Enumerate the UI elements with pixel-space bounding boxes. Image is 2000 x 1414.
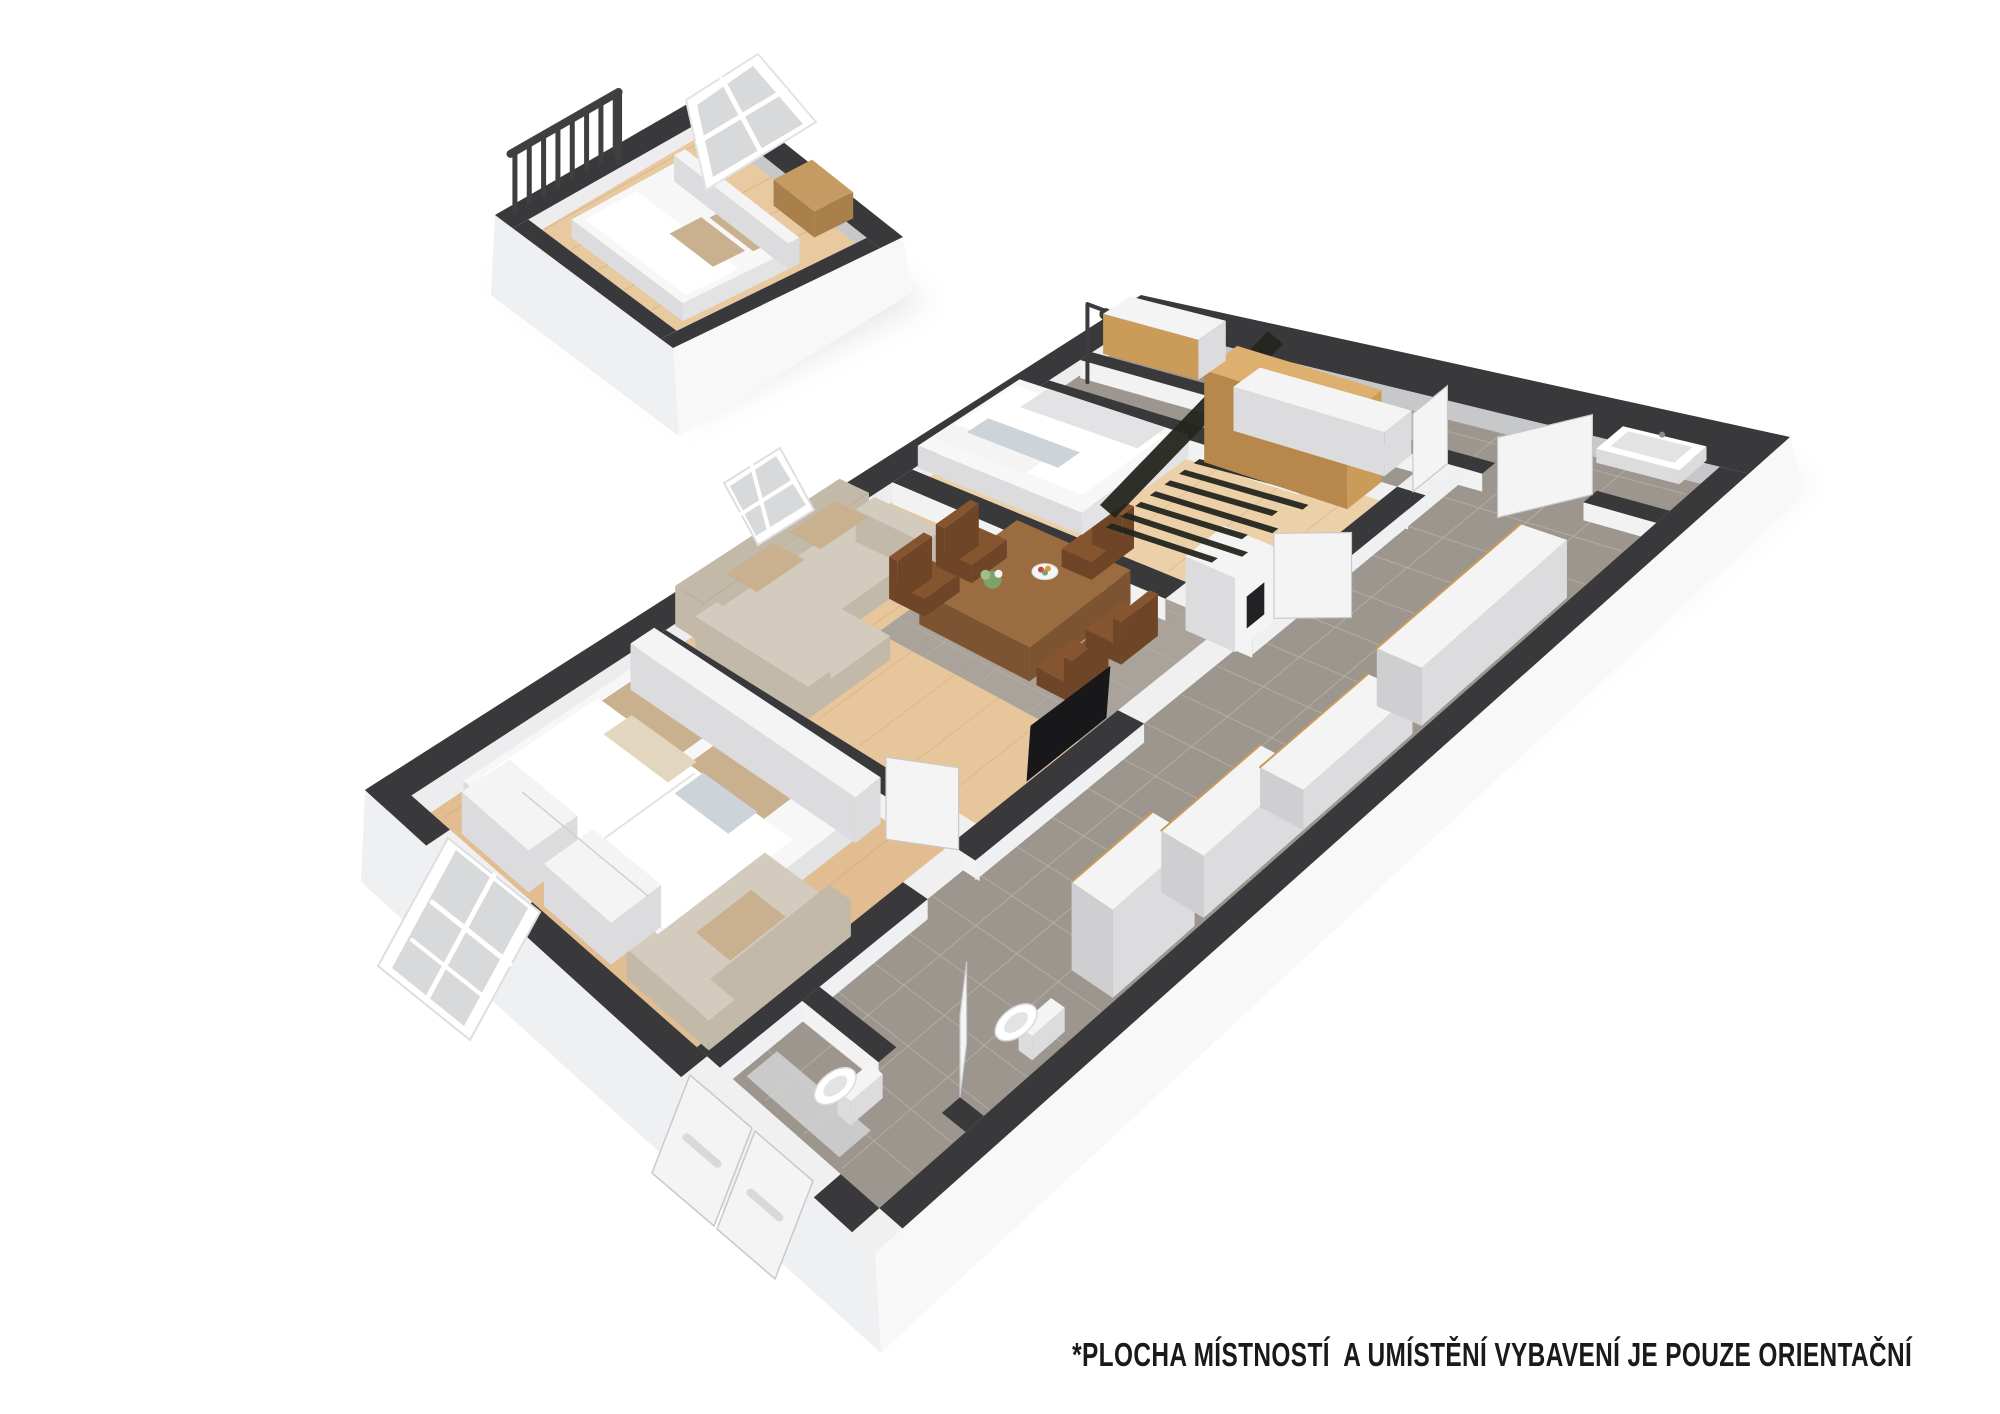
chair-back-face-sw [889, 557, 897, 603]
shower-arm [1087, 304, 1103, 310]
chair-back-face-sw [936, 524, 944, 570]
floor-plan-render [0, 0, 2000, 1414]
main-floor [361, 295, 1810, 1353]
disclaimer-text: *PLOCHA MÍSTNOSTÍ A UMÍSTĚNÍ VYBAVENÍ JE… [1072, 1336, 1912, 1374]
floor-plan-canvas: *PLOCHA MÍSTNOSTÍ A UMÍSTĚNÍ VYBAVENÍ JE… [0, 0, 2000, 1414]
attic-room [491, 54, 930, 436]
door-leaf [886, 757, 959, 850]
flower-vase [980, 570, 990, 580]
flower-vase [994, 570, 1002, 578]
sink-faucet [1659, 432, 1665, 438]
door-leaf [1274, 533, 1352, 619]
fruit [1042, 570, 1048, 576]
chair-back-face-sw [1113, 619, 1121, 665]
